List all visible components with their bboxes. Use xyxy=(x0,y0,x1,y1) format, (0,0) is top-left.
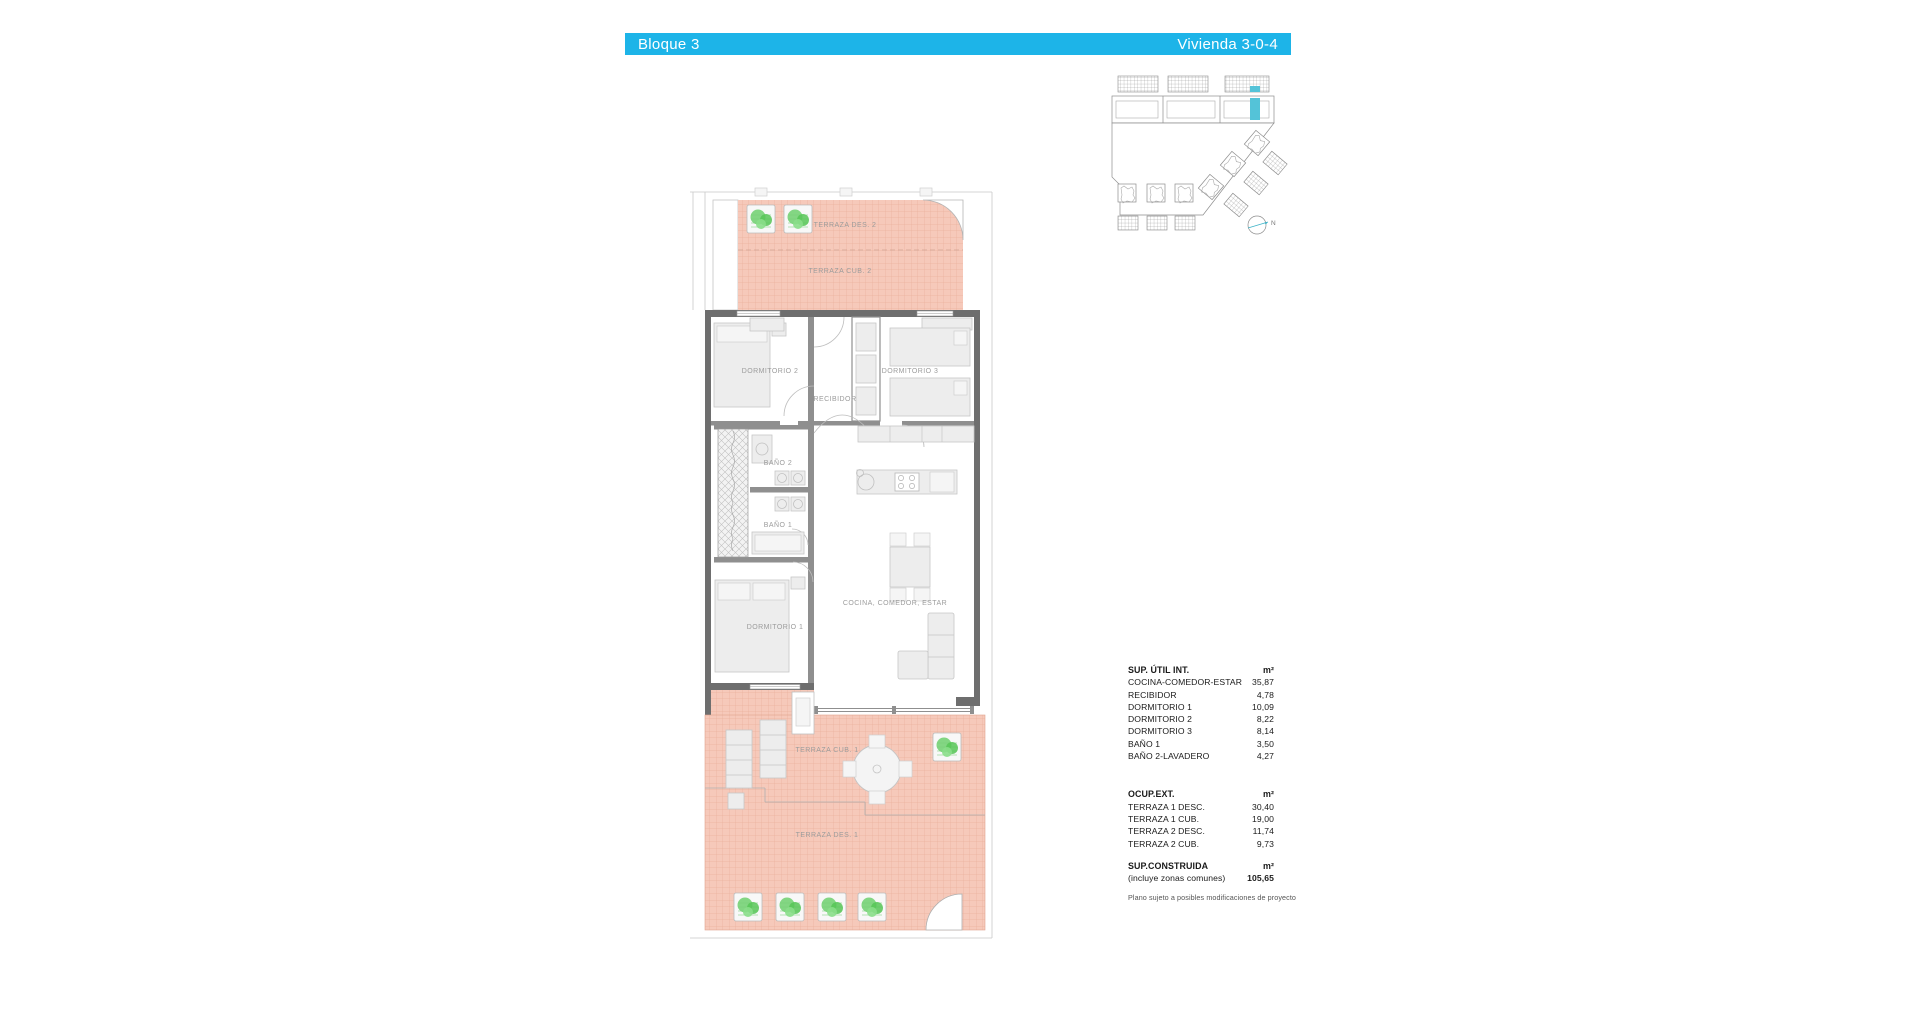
bano-1-label: BAÑO 1 xyxy=(764,520,792,529)
cocina-label: COCINA, COMEDOR, ESTAR xyxy=(843,600,947,607)
terraza-1: TERRAZA CUB. 1 TERRAZA DES. 1 xyxy=(705,690,985,930)
block-title: Bloque 3 xyxy=(638,36,700,53)
table-header: SUP. ÚTIL INT. m² xyxy=(1128,664,1274,676)
cocina-comedor-estar: COCINA, COMEDOR, ESTAR xyxy=(843,426,974,679)
dormitorio-2: DORMITORIO 2 xyxy=(714,318,798,407)
table-header: OCUP.EXT. m² xyxy=(1128,788,1274,800)
terraza-2-cub-label: TERRAZA CUB. 2 xyxy=(808,268,871,275)
area-tables: SUP. ÚTIL INT. m² COCINA-COMEDOR-ESTAR35… xyxy=(1128,664,1274,884)
table-row: TERRAZA 1 CUB.19,00 xyxy=(1128,813,1274,825)
table-title: SUP.CONSTRUIDA xyxy=(1128,860,1208,872)
table-title: SUP. ÚTIL INT. xyxy=(1128,664,1189,676)
unit-header: m² xyxy=(1263,788,1274,800)
unit-title: Vivienda 3-0-4 xyxy=(1177,36,1278,53)
bano-2: BAÑO 2 xyxy=(752,435,805,485)
ocup-ext-table: OCUP.EXT. m² TERRAZA 1 DESC.30,40 TERRAZ… xyxy=(1128,788,1274,849)
disclaimer-note: Plano sujeto a posibles modificaciones d… xyxy=(1128,893,1313,902)
stove xyxy=(895,473,919,491)
unit-header: m² xyxy=(1263,664,1274,676)
dormitorio-1: DORMITORIO 1 xyxy=(715,577,805,672)
site-parcel xyxy=(1112,123,1274,215)
highlighted-unit xyxy=(1250,98,1260,120)
table-row: BAÑO 2-LAVADERO4,27 xyxy=(1128,750,1274,762)
table-row: (incluye zonas comunes) 105,65 xyxy=(1128,872,1274,884)
side-corridor xyxy=(713,200,738,310)
table-title: OCUP.EXT. xyxy=(1128,788,1175,800)
table-row: TERRAZA 2 CUB.9,73 xyxy=(1128,838,1274,850)
unit-header: m² xyxy=(1263,860,1274,872)
dormitorio-2-label: DORMITORIO 2 xyxy=(742,368,799,375)
recibidor-label: RECIBIDOR xyxy=(814,396,857,403)
dining-table xyxy=(890,533,930,601)
title-bar: Bloque 3 Vivienda 3-0-4 xyxy=(625,33,1291,55)
north-label: N xyxy=(1271,220,1276,227)
plan-sheet: Bloque 3 Vivienda 3-0-4 xyxy=(0,0,1920,1024)
bano-1: BAÑO 1 xyxy=(752,497,805,554)
terraza-1-des-label: TERRAZA DES. 1 xyxy=(796,832,859,839)
table-row: BAÑO 13,50 xyxy=(1128,738,1274,750)
table-row: RECIBIDOR4,78 xyxy=(1128,689,1274,701)
north-compass: N xyxy=(1248,216,1276,234)
floor-plan: TERRAZA DES. 2 TERRAZA CUB. 2 xyxy=(690,185,1000,950)
terraza-1-cub-label: TERRAZA CUB. 1 xyxy=(795,747,858,754)
table-row: TERRAZA 2 DESC.11,74 xyxy=(1128,825,1274,837)
site-plan: N xyxy=(1100,60,1300,250)
site-building-strip xyxy=(1112,96,1274,123)
total-built-area: 105,65 xyxy=(1247,872,1274,884)
site-top-blocks xyxy=(1118,76,1269,92)
bano-2-label: BAÑO 2 xyxy=(764,458,792,467)
table-row: DORMITORIO 110,09 xyxy=(1128,701,1274,713)
table-row: DORMITORIO 28,22 xyxy=(1128,713,1274,725)
table-row: DORMITORIO 38,14 xyxy=(1128,725,1274,737)
table-header: SUP.CONSTRUIDA m² xyxy=(1128,860,1274,872)
table-row: COCINA-COMEDOR-ESTAR35,87 xyxy=(1128,676,1274,688)
terraza-2: TERRAZA DES. 2 TERRAZA CUB. 2 xyxy=(713,200,963,310)
dormitorio-3-label: DORMITORIO 3 xyxy=(882,368,939,375)
terraza-2-des-label: TERRAZA DES. 2 xyxy=(814,222,877,229)
dormitorio-3: DORMITORIO 3 xyxy=(882,318,972,416)
dormitorio-1-label: DORMITORIO 1 xyxy=(747,624,804,631)
kitchen-counter xyxy=(858,426,974,442)
sofa xyxy=(898,613,954,679)
sup-util-table: SUP. ÚTIL INT. m² COCINA-COMEDOR-ESTAR35… xyxy=(1128,664,1274,762)
table-row: TERRAZA 1 DESC.30,40 xyxy=(1128,801,1274,813)
sup-construida-table: SUP.CONSTRUIDA m² (incluye zonas comunes… xyxy=(1128,860,1274,885)
